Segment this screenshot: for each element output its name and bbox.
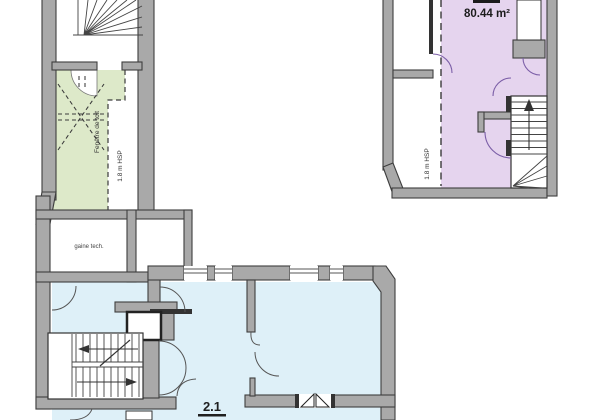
duct-shaft-upper — [517, 0, 541, 40]
staircase-unit-upper — [511, 96, 547, 188]
staircase-main — [48, 333, 143, 399]
upper-unit-hsp-label: 1.8 m HSP — [424, 148, 431, 179]
cutoff-label-underline — [473, 0, 500, 3]
attic-hsp-label: 1.8 m HSP — [117, 150, 124, 181]
unit-2-1-label: 2.1 — [203, 399, 221, 414]
floor-plan-page: 80.44 m² 1.8 m HSP Fenêtre de toit 1.8 m… — [0, 0, 600, 420]
bottom-wall-fragment — [126, 411, 152, 420]
floor-plan: 80.44 m² 1.8 m HSP Fenêtre de toit 1.8 m… — [0, 0, 600, 420]
unit-2-1-underline — [198, 414, 226, 417]
staircase-upper-wing — [73, 0, 143, 35]
upper-unit-area-label: 80.44 m² — [464, 8, 510, 20]
french-door — [295, 394, 335, 408]
skylight-label: Fenêtre de toit — [94, 111, 101, 153]
duct-room-label: gaine tech. — [74, 244, 104, 250]
